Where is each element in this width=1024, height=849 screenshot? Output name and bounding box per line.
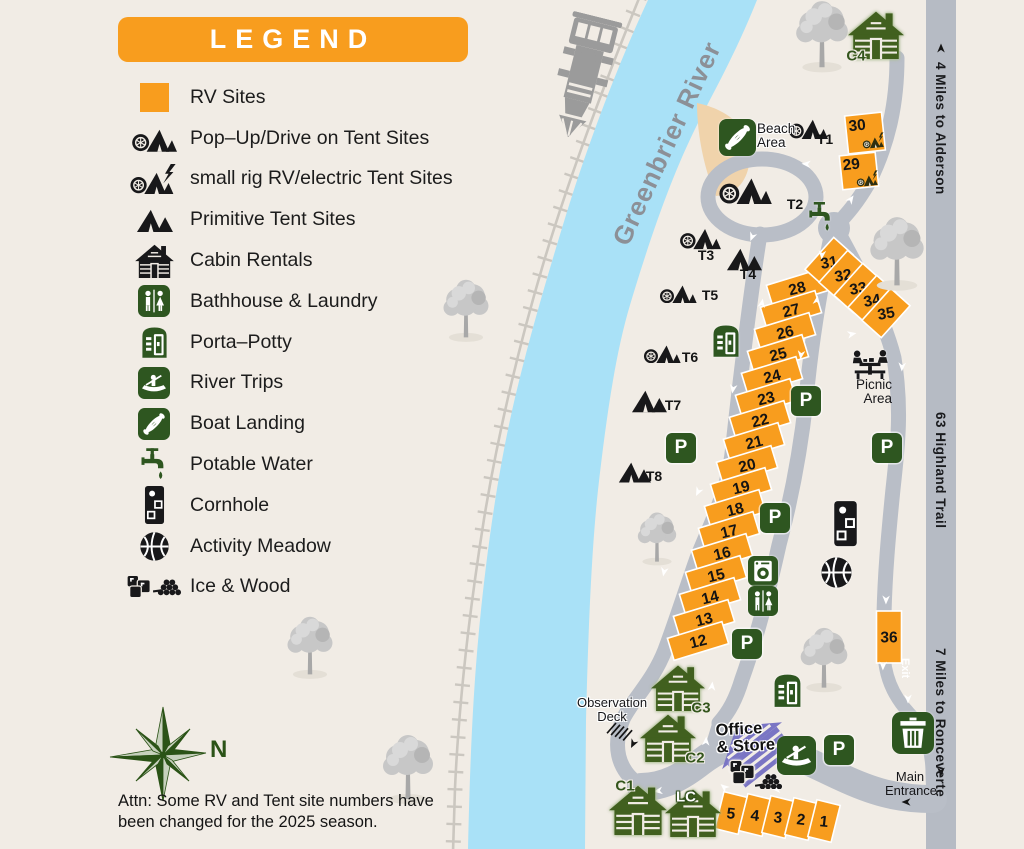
legend-item-label: Activity Meadow: [190, 535, 331, 558]
legend-item: Primitive Tent Sites: [118, 199, 488, 240]
parking-sign: P: [872, 433, 902, 463]
office-store-label: Office& Store: [715, 719, 775, 755]
sign-ronceverte: 7 Miles to Ronceverte: [933, 648, 948, 797]
legend-item-label: Cabin Rentals: [190, 249, 312, 272]
rv-square: [118, 83, 190, 112]
legend-item: Ice & Wood: [118, 567, 488, 608]
tree-icon: [865, 215, 929, 292]
popup-tent-site-icon: [643, 341, 681, 364]
attention-note: Attn: Some RV and Tent site numbers have…: [118, 791, 458, 834]
picnic-icon: [849, 349, 891, 380]
parking-sign: P: [732, 629, 762, 659]
parking-sign: P: [824, 735, 854, 765]
legend-item-label: RV Sites: [190, 86, 266, 109]
legend-item: small rig RV/electric Tent Sites: [118, 159, 488, 200]
tent-site-label: T1: [817, 131, 833, 147]
parking-letter: P: [741, 633, 754, 655]
tent-site-label: T4: [740, 266, 756, 282]
primitive-tent-icon: [118, 208, 190, 232]
tent-site-label: T7: [665, 397, 681, 413]
primitive-tent-site-icon: [631, 389, 667, 412]
legend-item: Bathhouse & Laundry: [118, 281, 488, 322]
popup-tent-site-icon: [718, 172, 772, 204]
potable-water-icon: [807, 202, 835, 232]
observation-deck-label: ObservationDeck: [568, 696, 656, 723]
parking-letter: P: [769, 507, 782, 529]
sign-exit: Exit: [899, 658, 911, 678]
cornhole-icon: [118, 485, 190, 525]
legend-item: River Trips: [118, 363, 488, 404]
tree-icon: [283, 615, 337, 680]
compass-north-label: N: [210, 736, 227, 764]
tent-site-label: T5: [702, 287, 718, 303]
legend-item: Activity Meadow: [118, 526, 488, 567]
boat-landing-icon: [719, 119, 756, 156]
legend-item-label: Ice & Wood: [190, 575, 290, 598]
cabin-label: LC: [676, 789, 696, 806]
legend-item-label: Cornhole: [190, 494, 269, 517]
legend-item-label: Porta–Potty: [190, 331, 292, 354]
wood-icon: [755, 773, 783, 790]
popup-tent-site-icon: [679, 224, 721, 249]
cabin-icon: [118, 243, 190, 278]
tree-icon: [791, 0, 853, 73]
legend-item: Cornhole: [118, 485, 488, 526]
popup-tent-icon: [118, 124, 190, 152]
legend-item: Pop–Up/Drive on Tent Sites: [118, 118, 488, 159]
tree-icon: [796, 626, 852, 693]
river-trips-icon: [777, 736, 816, 775]
legend-item: Boat Landing: [118, 403, 488, 444]
porta-potty-icon: [772, 672, 803, 708]
bathhouse-icon: [118, 285, 190, 317]
legend-item-label: Pop–Up/Drive on Tent Sites: [190, 127, 429, 150]
trash-icon: [892, 712, 934, 754]
tent-site-label: T8: [646, 468, 662, 484]
parking-letter: P: [881, 437, 894, 459]
ice-icon: [729, 759, 757, 785]
tent-site-label: T6: [682, 349, 698, 365]
porta-potty-icon: [118, 325, 190, 359]
activity-meadow-icon: [118, 531, 190, 562]
parking-sign: P: [666, 433, 696, 463]
legend-item-label: Potable Water: [190, 453, 313, 476]
train-icon: [538, 9, 628, 144]
main-entrance-label: MainEntrance: [885, 770, 935, 797]
basketball-icon: [820, 556, 853, 589]
laundry-icon: [748, 556, 778, 586]
popup-tent-site-icon: [659, 281, 697, 304]
legend-panel: RV SitesPop–Up/Drive on Tent Sitessmall …: [118, 77, 488, 607]
legend-item-label: Bathhouse & Laundry: [190, 290, 378, 313]
sign-alderson: 4 Miles to Alderson: [933, 62, 948, 195]
legend-item: RV Sites: [118, 77, 488, 118]
river-trips-icon: [118, 367, 190, 399]
cabin-label: C4: [846, 48, 865, 65]
bathhouse-icon: [748, 586, 778, 616]
potable-water-icon: [118, 448, 190, 481]
parking-sign: P: [791, 386, 821, 416]
legend-item-label: Primitive Tent Sites: [190, 208, 355, 231]
boat-landing-icon: [118, 408, 190, 440]
legend-item: Porta–Potty: [118, 322, 488, 363]
tree-icon: [634, 511, 680, 566]
cabin-label: C2: [685, 750, 704, 767]
picnic-area-label: PicnicArea: [840, 378, 892, 406]
parking-letter: P: [800, 390, 813, 412]
legend-item: Cabin Rentals: [118, 240, 488, 281]
legend-item-label: River Trips: [190, 371, 283, 394]
legend-item: Potable Water: [118, 444, 488, 485]
cabin-label: C1: [615, 778, 634, 795]
tent-site-label: T2: [787, 196, 803, 212]
campground-map: 2827262524232221201918171615141312313233…: [0, 0, 1024, 849]
legend-item-label: small rig RV/electric Tent Sites: [190, 167, 453, 190]
parking-sign: P: [760, 503, 790, 533]
cornhole-icon: [832, 500, 859, 547]
small-rig-icon: [118, 164, 190, 194]
beach-area-label: BeachArea: [757, 122, 795, 150]
parking-letter: P: [833, 739, 846, 761]
legend-title: LEGEND: [118, 17, 468, 62]
ice-wood-icon: [118, 574, 190, 599]
parking-letter: P: [675, 437, 688, 459]
legend-item-label: Boat Landing: [190, 412, 305, 435]
tent-site-label: T3: [698, 247, 714, 263]
porta-potty-icon: [711, 323, 741, 358]
sign-highland-trail: 63 Highland Trail: [933, 412, 948, 529]
